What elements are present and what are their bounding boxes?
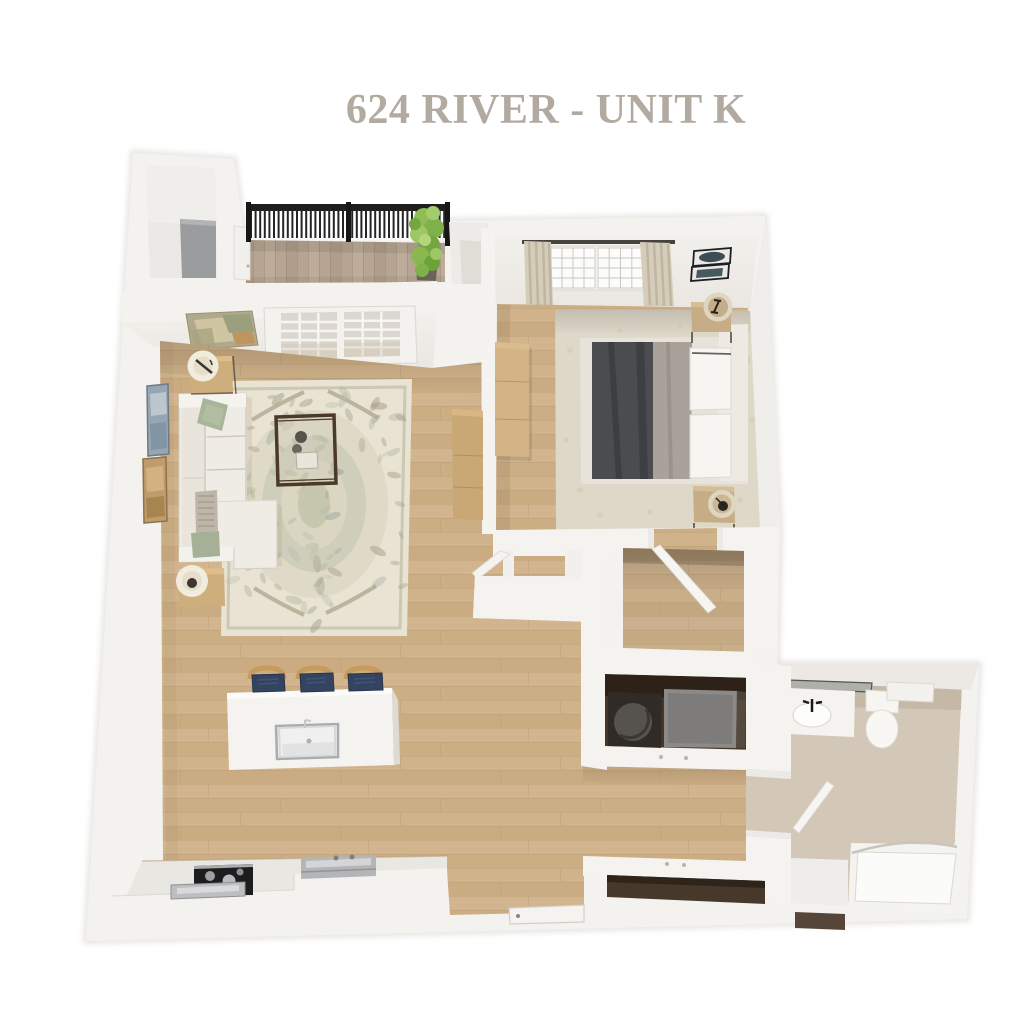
- svg-text:624 RIVER - UNIT K: 624 RIVER - UNIT K: [346, 87, 746, 133]
